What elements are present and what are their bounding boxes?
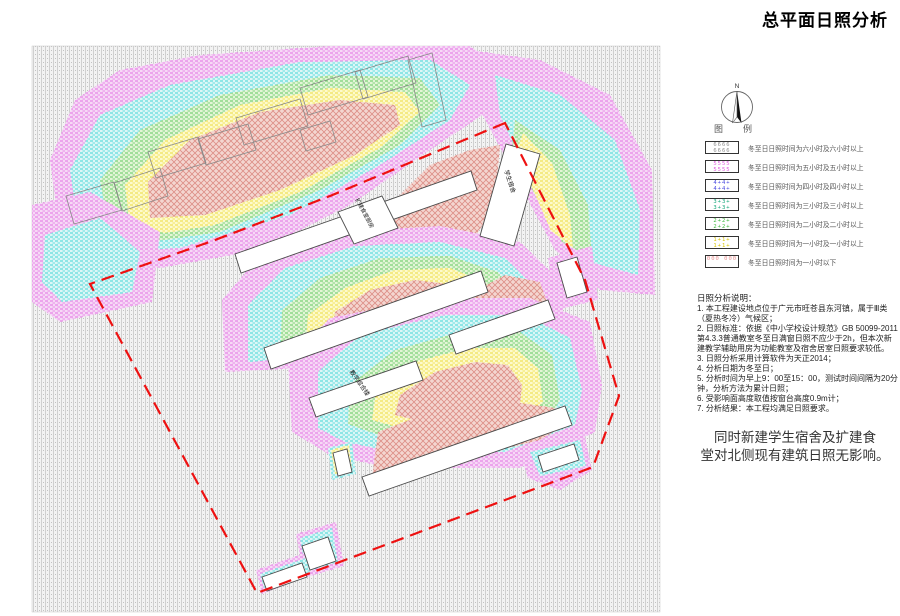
legend-caption-right: 例 [743, 124, 752, 134]
legend-label: 冬至日日照时间为六小时及六小时以上 [748, 143, 864, 153]
legend-item: 2+2+ 2+2+ 冬至日日照时间为二小时及二小时以上 [705, 217, 900, 230]
legend-item: 000 000 冬至日日照时间为一小时以下 [705, 255, 900, 268]
legend: 6666 6666 冬至日日照时间为六小时及六小时以上 5555 5555 冬至… [705, 141, 900, 274]
note-item-1: 1. 本工程建设地点位于广元市旺苍县东河镇，属于Ⅲ类（夏热冬冷）气候区； [697, 304, 898, 324]
conclusion-line-2: 堂对北侧现有建筑日照无影响。 [694, 447, 896, 465]
note-item-5: 5. 分析时间为早上9：00至15：00，测试时间间隔为20分钟，分析方法为累计… [697, 374, 898, 394]
legend-swatch-6h: 6666 6666 [705, 141, 739, 154]
legend-swatch-5h: 5555 5555 [705, 160, 739, 173]
legend-item: 6666 6666 冬至日日照时间为六小时及六小时以上 [705, 141, 900, 154]
legend-label: 冬至日日照时间为四小时及四小时以上 [748, 181, 864, 191]
legend-caption: 图例 [714, 122, 752, 135]
legend-label: 冬至日日照时间为二小时及二小时以上 [748, 219, 864, 229]
note-item-7: 7. 分析结果：本工程均满足日照要求。 [697, 404, 898, 414]
legend-item: 5555 5555 冬至日日照时间为五小时及五小时以上 [705, 160, 900, 173]
legend-swatch-1h: 1+1+ 1+1+ [705, 236, 739, 249]
legend-label: 冬至日日照时间为三小时及三小时以上 [748, 200, 864, 210]
note-item-3: 3. 日照分析采用计算软件为天正2014； [697, 354, 898, 364]
note-item-2: 2. 日照标准：依据《中小学校设计规范》GB 50099-2011第4.3.3普… [697, 324, 898, 354]
legend-label: 冬至日日照时间为一小时以下 [748, 257, 836, 267]
page-title: 总平面日照分析 [762, 6, 888, 31]
note-item-4: 4. 分析日期为冬至日； [697, 364, 898, 374]
conclusion-line-1: 同时新建学生宿舍及扩建食 [694, 429, 896, 447]
legend-swatch-0h: 000 000 [705, 255, 739, 268]
legend-label: 冬至日日照时间为一小时及一小时以上 [748, 238, 864, 248]
conclusion-statement: 同时新建学生宿舍及扩建食 堂对北侧现有建筑日照无影响。 [694, 429, 896, 464]
legend-swatch-3h: 3+3+ 3+3+ [705, 198, 739, 211]
legend-swatch-2h: 2+2+ 2+2+ [705, 217, 739, 230]
legend-item: 4+4+ 4+4+ 冬至日日照时间为四小时及四小时以上 [705, 179, 900, 192]
analysis-notes: 日照分析说明： 1. 本工程建设地点位于广元市旺苍县东河镇，属于Ⅲ类（夏热冬冷）… [697, 293, 898, 414]
legend-label: 冬至日日照时间为五小时及五小时以上 [748, 162, 864, 172]
notes-title: 日照分析说明： [697, 293, 898, 304]
info-panel: 总平面日照分析 图例 6666 6666 冬至日日照时间为六小时及六小时以上 5… [690, 0, 900, 616]
legend-caption-left: 图 [714, 124, 723, 134]
note-item-6: 6. 受影响面高度取值按窗台高度0.9m计； [697, 394, 898, 404]
legend-item: 1+1+ 1+1+ 冬至日日照时间为一小时及一小时以上 [705, 236, 900, 249]
legend-swatch-4h: 4+4+ 4+4+ [705, 179, 739, 192]
legend-item: 3+3+ 3+3+ 冬至日日照时间为三小时及三小时以上 [705, 198, 900, 211]
